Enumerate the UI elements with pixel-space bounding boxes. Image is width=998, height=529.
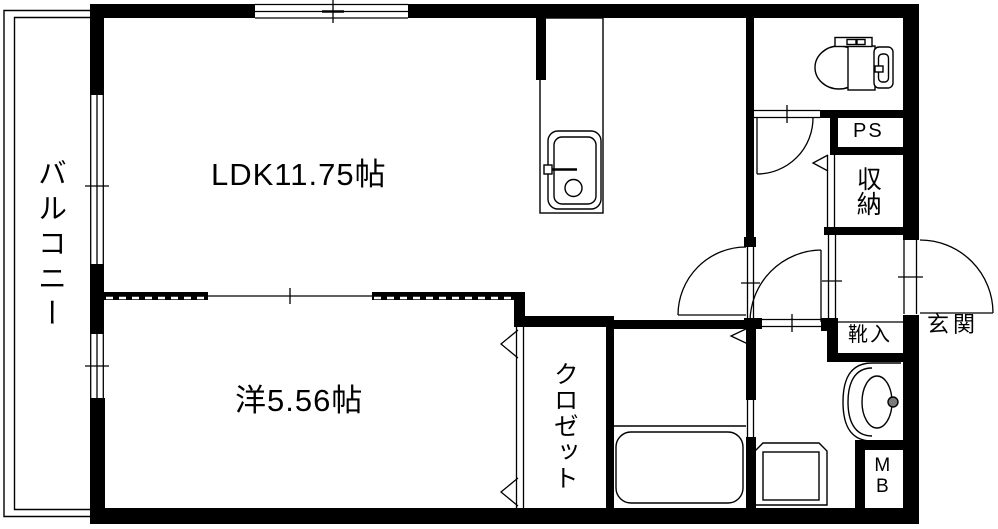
meter-box-left-wall [855, 440, 865, 510]
wall-top-right [408, 4, 919, 18]
washbasin-icon [843, 363, 901, 441]
windows [85, 0, 408, 399]
closet-label: クロゼット [551, 361, 577, 491]
entrance-label: 玄関 [927, 313, 979, 336]
sink-drain-icon [565, 180, 582, 197]
washbasin-faucet-knob-icon [888, 397, 898, 407]
closet-door-chevron-top-icon [501, 330, 518, 358]
washroom-left-wall-upper [746, 320, 756, 400]
toilet-bottom-wall [820, 110, 904, 118]
balcony-label: バルコニー [34, 158, 64, 333]
entrance-step-line [822, 235, 903, 322]
bedroom-room-label: 洋5.56帖 [235, 385, 363, 418]
interior-walls [104, 18, 904, 510]
entrance-door [898, 240, 993, 314]
ldk-hall-wall-end [744, 237, 756, 247]
window-left-ldk [85, 95, 109, 264]
bathtub-icon [614, 426, 746, 503]
wall-right-upper [903, 4, 919, 240]
shoe-cabinet-label: 靴入 [848, 325, 892, 346]
bathroom-top-wall [611, 320, 753, 329]
wall-bottom [90, 508, 919, 524]
toilet-door [754, 105, 820, 174]
ps-left-wall [830, 118, 838, 150]
kitchen-wall-stub [536, 18, 546, 80]
shoe-cabinet-bottom-wall [827, 353, 904, 362]
washroom-door [750, 250, 821, 332]
storage-label: 収納 [854, 166, 880, 216]
ps-bottom-wall [830, 147, 904, 155]
wall-top-left [90, 4, 255, 18]
ldk-hall-door [678, 247, 760, 318]
ldk-room-label: LDK11.75帖 [211, 159, 387, 192]
pipe-space-label: PS [853, 121, 884, 142]
toilet-tank [848, 46, 875, 90]
closet-door-chevron-bottom-icon [501, 478, 518, 506]
washing-machine-pan-icon [755, 443, 827, 505]
floor-plan: バルコニー LDK11.75帖 洋5.56帖 クロゼット PS 収納 靴入 玄関… [0, 0, 998, 529]
storage-door [813, 155, 835, 227]
wall-left-1 [90, 4, 104, 95]
wall-right-lower [903, 315, 919, 524]
window-left-bedroom [85, 334, 109, 399]
meter-box-label: MB [871, 455, 893, 497]
toilet-icon [815, 38, 893, 91]
ldk-bedroom-wall-right [372, 292, 525, 300]
storage-bottom-wall [824, 227, 904, 235]
floor-plan-drawing [0, 0, 998, 529]
wall-left-2 [90, 264, 104, 334]
outer-walls [90, 4, 919, 524]
storage-door-chevron-icon [813, 155, 828, 171]
kitchen-counter [540, 18, 603, 213]
wall-left-3 [90, 398, 105, 510]
closet-door [501, 327, 524, 510]
ldk-hall-wall [746, 18, 754, 237]
ldk-bedroom-opening [208, 288, 372, 304]
closet-top-wall [514, 316, 611, 327]
bathroom-door-chevron-icon [731, 328, 748, 344]
closet-right-wall [606, 316, 614, 510]
window-top [255, 0, 408, 23]
